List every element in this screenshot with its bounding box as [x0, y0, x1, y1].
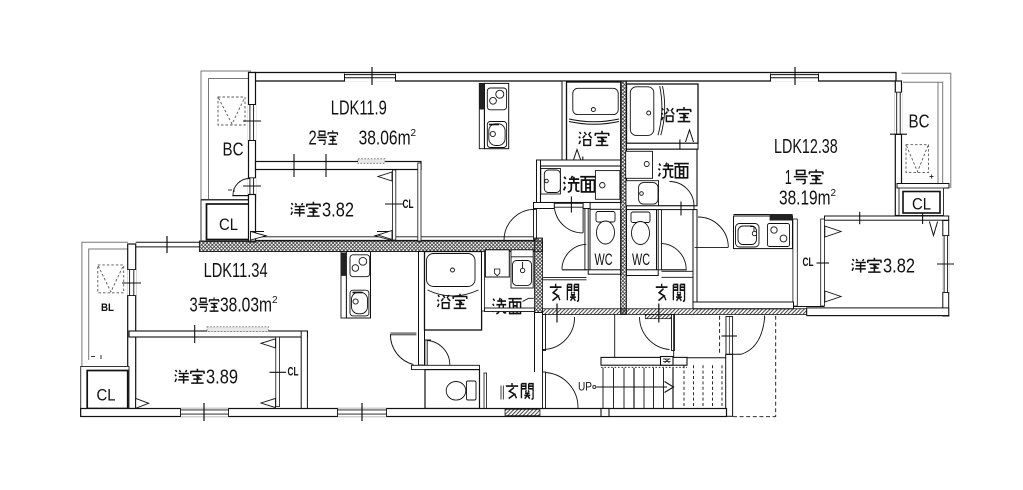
svg-text:CL: CL [912, 196, 931, 214]
svg-text:LDK11.9: LDK11.9 [331, 98, 387, 120]
svg-text:2: 2 [831, 188, 837, 199]
svg-text:LDK12.38: LDK12.38 [774, 136, 838, 158]
svg-text:3.82: 3.82 [883, 255, 915, 277]
svg-text:38.03m: 38.03m [220, 295, 272, 317]
svg-text:38.06m: 38.06m [359, 128, 411, 150]
svg-text:CL: CL [97, 387, 116, 405]
svg-text:CL: CL [803, 257, 814, 269]
svg-text:BL: BL [101, 302, 114, 314]
svg-text:CL: CL [219, 216, 238, 234]
svg-text:2: 2 [411, 128, 417, 139]
svg-text:BC: BC [909, 112, 930, 132]
svg-text:WC: WC [632, 251, 650, 269]
svg-text:3.89: 3.89 [206, 366, 238, 388]
svg-text:CL: CL [403, 199, 414, 211]
svg-text:3: 3 [190, 295, 198, 317]
svg-text:1: 1 [785, 167, 792, 189]
svg-text:CL: CL [288, 367, 299, 379]
svg-text:WC: WC [595, 251, 613, 269]
svg-text:UP: UP [578, 380, 592, 394]
svg-text:LDK11.34: LDK11.34 [204, 260, 268, 282]
svg-text:38.19m: 38.19m [779, 187, 831, 209]
svg-text:2: 2 [309, 128, 317, 150]
svg-text:2: 2 [272, 295, 278, 306]
svg-text:3.82: 3.82 [322, 199, 354, 221]
svg-text:BC: BC [223, 140, 244, 160]
